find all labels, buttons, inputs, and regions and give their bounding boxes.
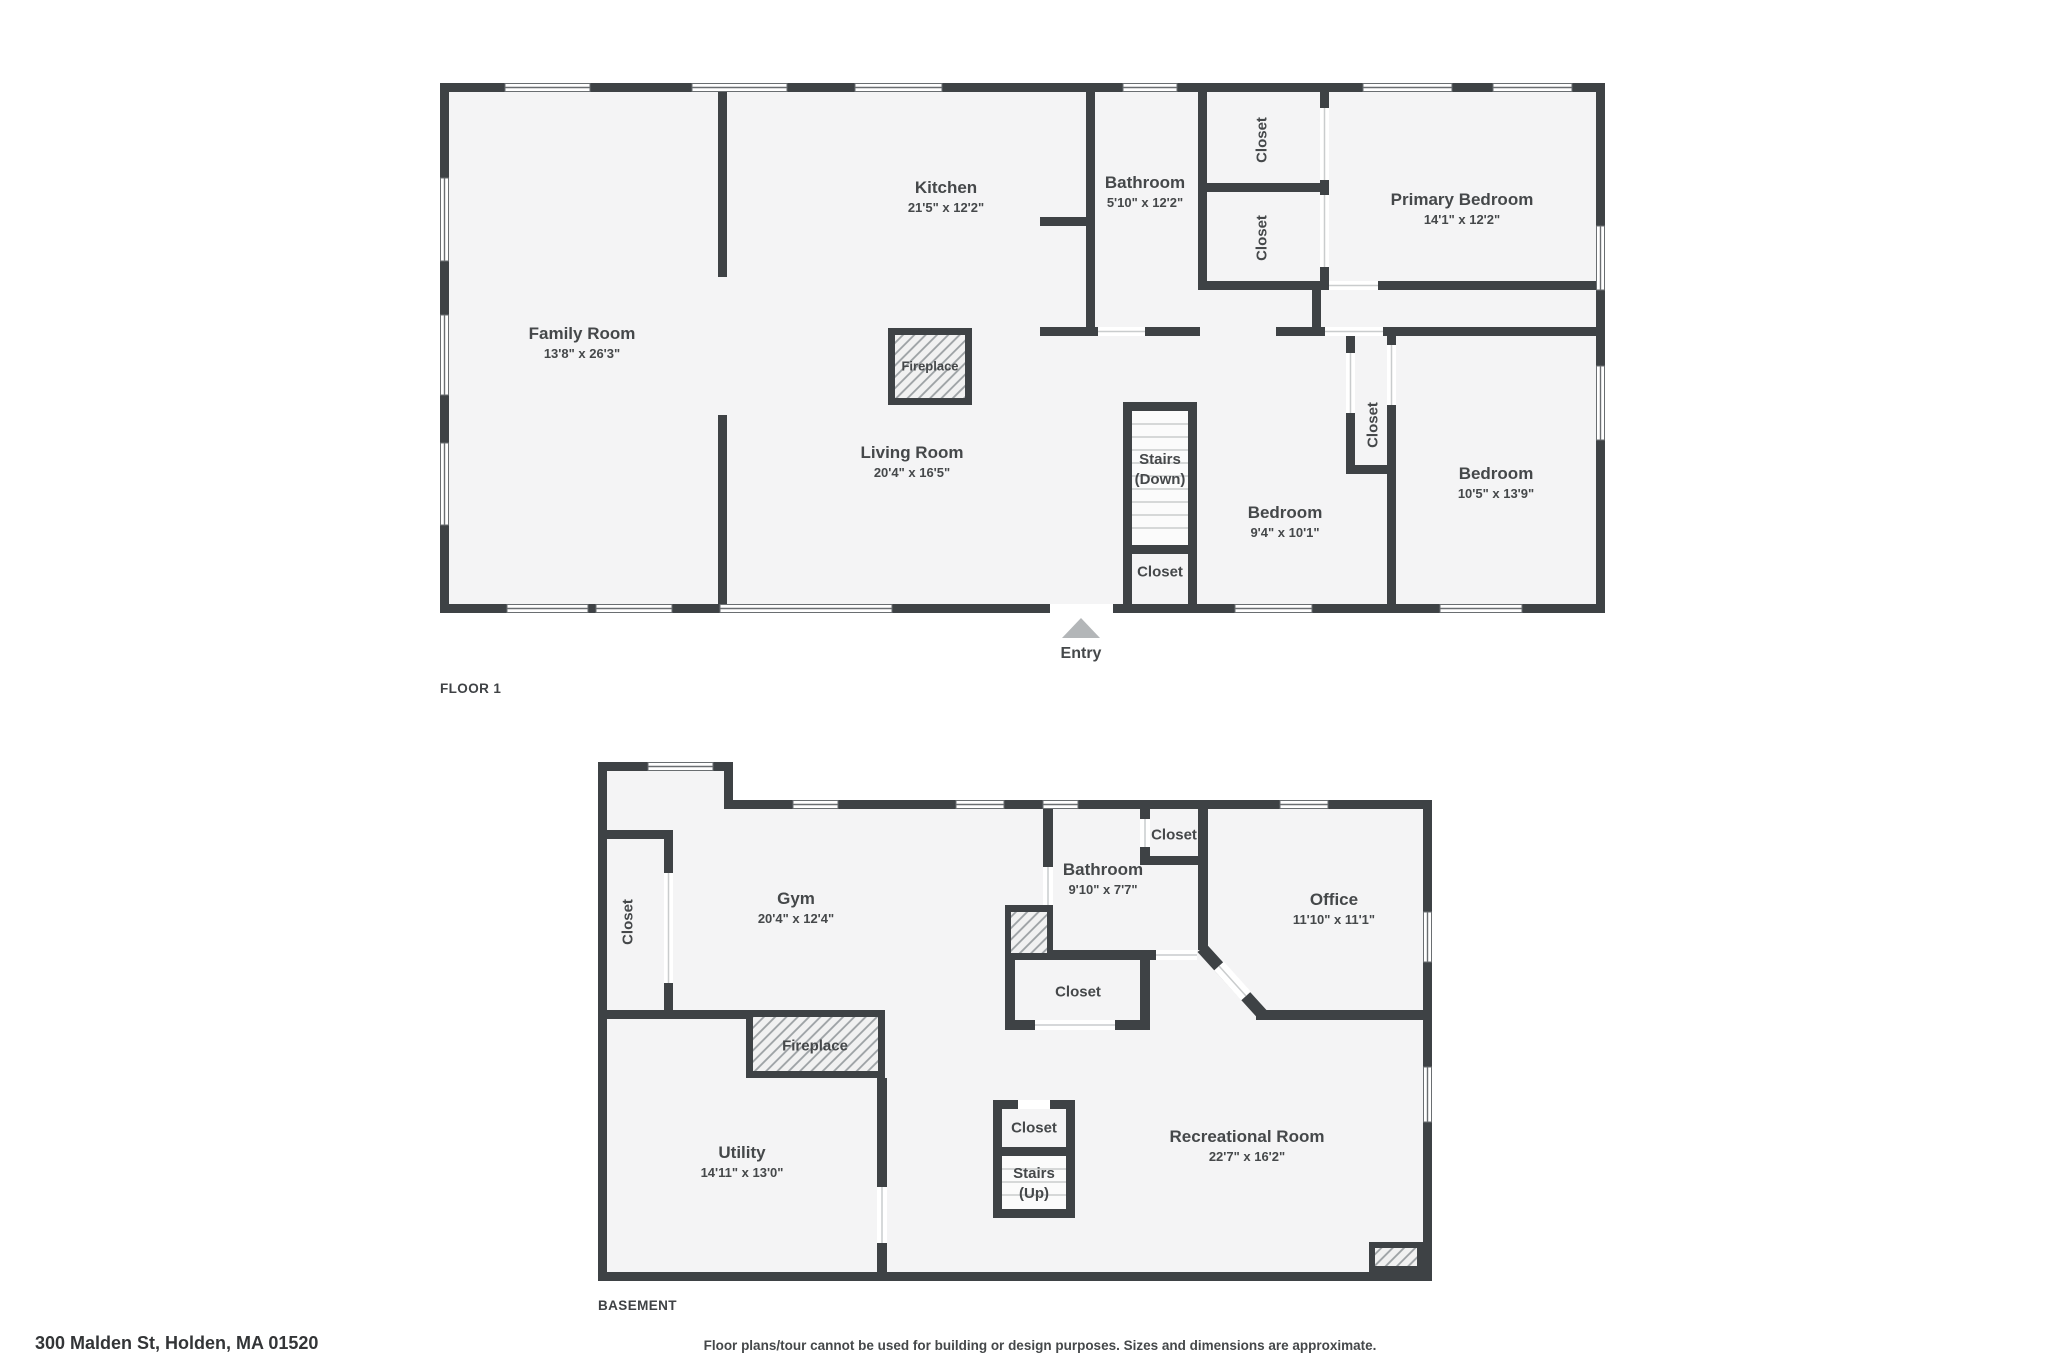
stairs-up-label: Stairs (Up)	[1013, 1164, 1055, 1205]
room-label-bathroom-f1: Bathroom 5'10" x 12'2"	[1105, 173, 1185, 210]
room-dims: 9'10" x 7'7"	[1063, 883, 1143, 898]
stairs-down-label: Stairs (Down)	[1135, 450, 1186, 491]
room-label-bedroom-closet: Closet	[1365, 402, 1382, 448]
room-name: Kitchen	[908, 178, 984, 198]
room-name: Utility	[701, 1143, 784, 1163]
room-label-stairs-closet-f1: Closet	[1137, 564, 1183, 581]
room-name: Bathroom	[1105, 173, 1185, 193]
room-dims: 20'4" x 16'5"	[861, 466, 964, 481]
room-label-living-room: Living Room 20'4" x 16'5"	[861, 443, 964, 480]
fireplace-label-f1: Fireplace	[901, 359, 958, 374]
room-dims: 9'4" x 10'1"	[1248, 526, 1323, 541]
room-label-gym-closet: Closet	[620, 899, 637, 945]
room-label-gym: Gym 20'4" x 12'4"	[758, 889, 834, 926]
room-label-closet-b: Closet	[1254, 215, 1271, 261]
floorplan-page: { "page": { "address": "300 Malden St, H…	[0, 0, 2048, 1365]
room-dims: 22'7" x 16'2"	[1170, 1150, 1325, 1165]
room-dims: 20'4" x 12'4"	[758, 912, 834, 927]
room-label-bathroom-basement: Bathroom 9'10" x 7'7"	[1063, 860, 1143, 897]
room-label-utility: Utility 14'11" x 13'0"	[701, 1143, 784, 1180]
disclaimer-text: Floor plans/tour cannot be used for buil…	[704, 1338, 1377, 1353]
floor1-tag: FLOOR 1	[440, 681, 501, 696]
room-name: Family Room	[529, 324, 636, 344]
room-label-stairs-closet-basement: Closet	[1011, 1120, 1057, 1137]
room-name: Bedroom	[1458, 464, 1534, 484]
room-label-office: Office 11'10" x 11'1"	[1293, 890, 1375, 927]
basement-tag: BASEMENT	[598, 1298, 677, 1313]
room-dims: 10'5" x 13'9"	[1458, 487, 1534, 502]
room-label-family-room: Family Room 13'8" x 26'3"	[529, 324, 636, 361]
entry-arrow-icon	[1062, 618, 1100, 638]
room-label-bedroom-small: Bedroom 9'4" x 10'1"	[1248, 503, 1323, 540]
room-label-kitchen: Kitchen 21'5" x 12'2"	[908, 178, 984, 215]
stairs-line2: (Down)	[1135, 470, 1186, 490]
room-label-hall-closet: Closet	[1055, 984, 1101, 1001]
room-dims: 5'10" x 12'2"	[1105, 196, 1185, 211]
room-dims: 14'1" x 12'2"	[1391, 213, 1534, 228]
room-label-closet-a: Closet	[1254, 117, 1271, 163]
room-name: Office	[1293, 890, 1375, 910]
room-dims: 13'8" x 26'3"	[529, 347, 636, 362]
room-label-office-closet: Closet	[1151, 827, 1197, 844]
property-address: 300 Malden St, Holden, MA 01520	[35, 1333, 318, 1354]
room-label-primary-bedroom: Primary Bedroom 14'1" x 12'2"	[1391, 190, 1534, 227]
room-dims: 11'10" x 11'1"	[1293, 913, 1375, 928]
stairs-line1: Stairs	[1135, 450, 1186, 470]
room-name: Primary Bedroom	[1391, 190, 1534, 210]
room-name: Gym	[758, 889, 834, 909]
room-name: Bathroom	[1063, 860, 1143, 880]
room-name: Recreational Room	[1170, 1127, 1325, 1147]
room-label-recreational-room: Recreational Room 22'7" x 16'2"	[1170, 1127, 1325, 1164]
stairs-line2: (Up)	[1013, 1184, 1055, 1204]
room-dims: 14'11" x 13'0"	[701, 1166, 784, 1181]
entry-label: Entry	[1061, 645, 1102, 663]
room-name: Bedroom	[1248, 503, 1323, 523]
stairs-line1: Stairs	[1013, 1164, 1055, 1184]
room-name: Living Room	[861, 443, 964, 463]
room-dims: 21'5" x 12'2"	[908, 201, 984, 216]
room-label-bedroom: Bedroom 10'5" x 13'9"	[1458, 464, 1534, 501]
fireplace-label-basement: Fireplace	[782, 1038, 848, 1055]
